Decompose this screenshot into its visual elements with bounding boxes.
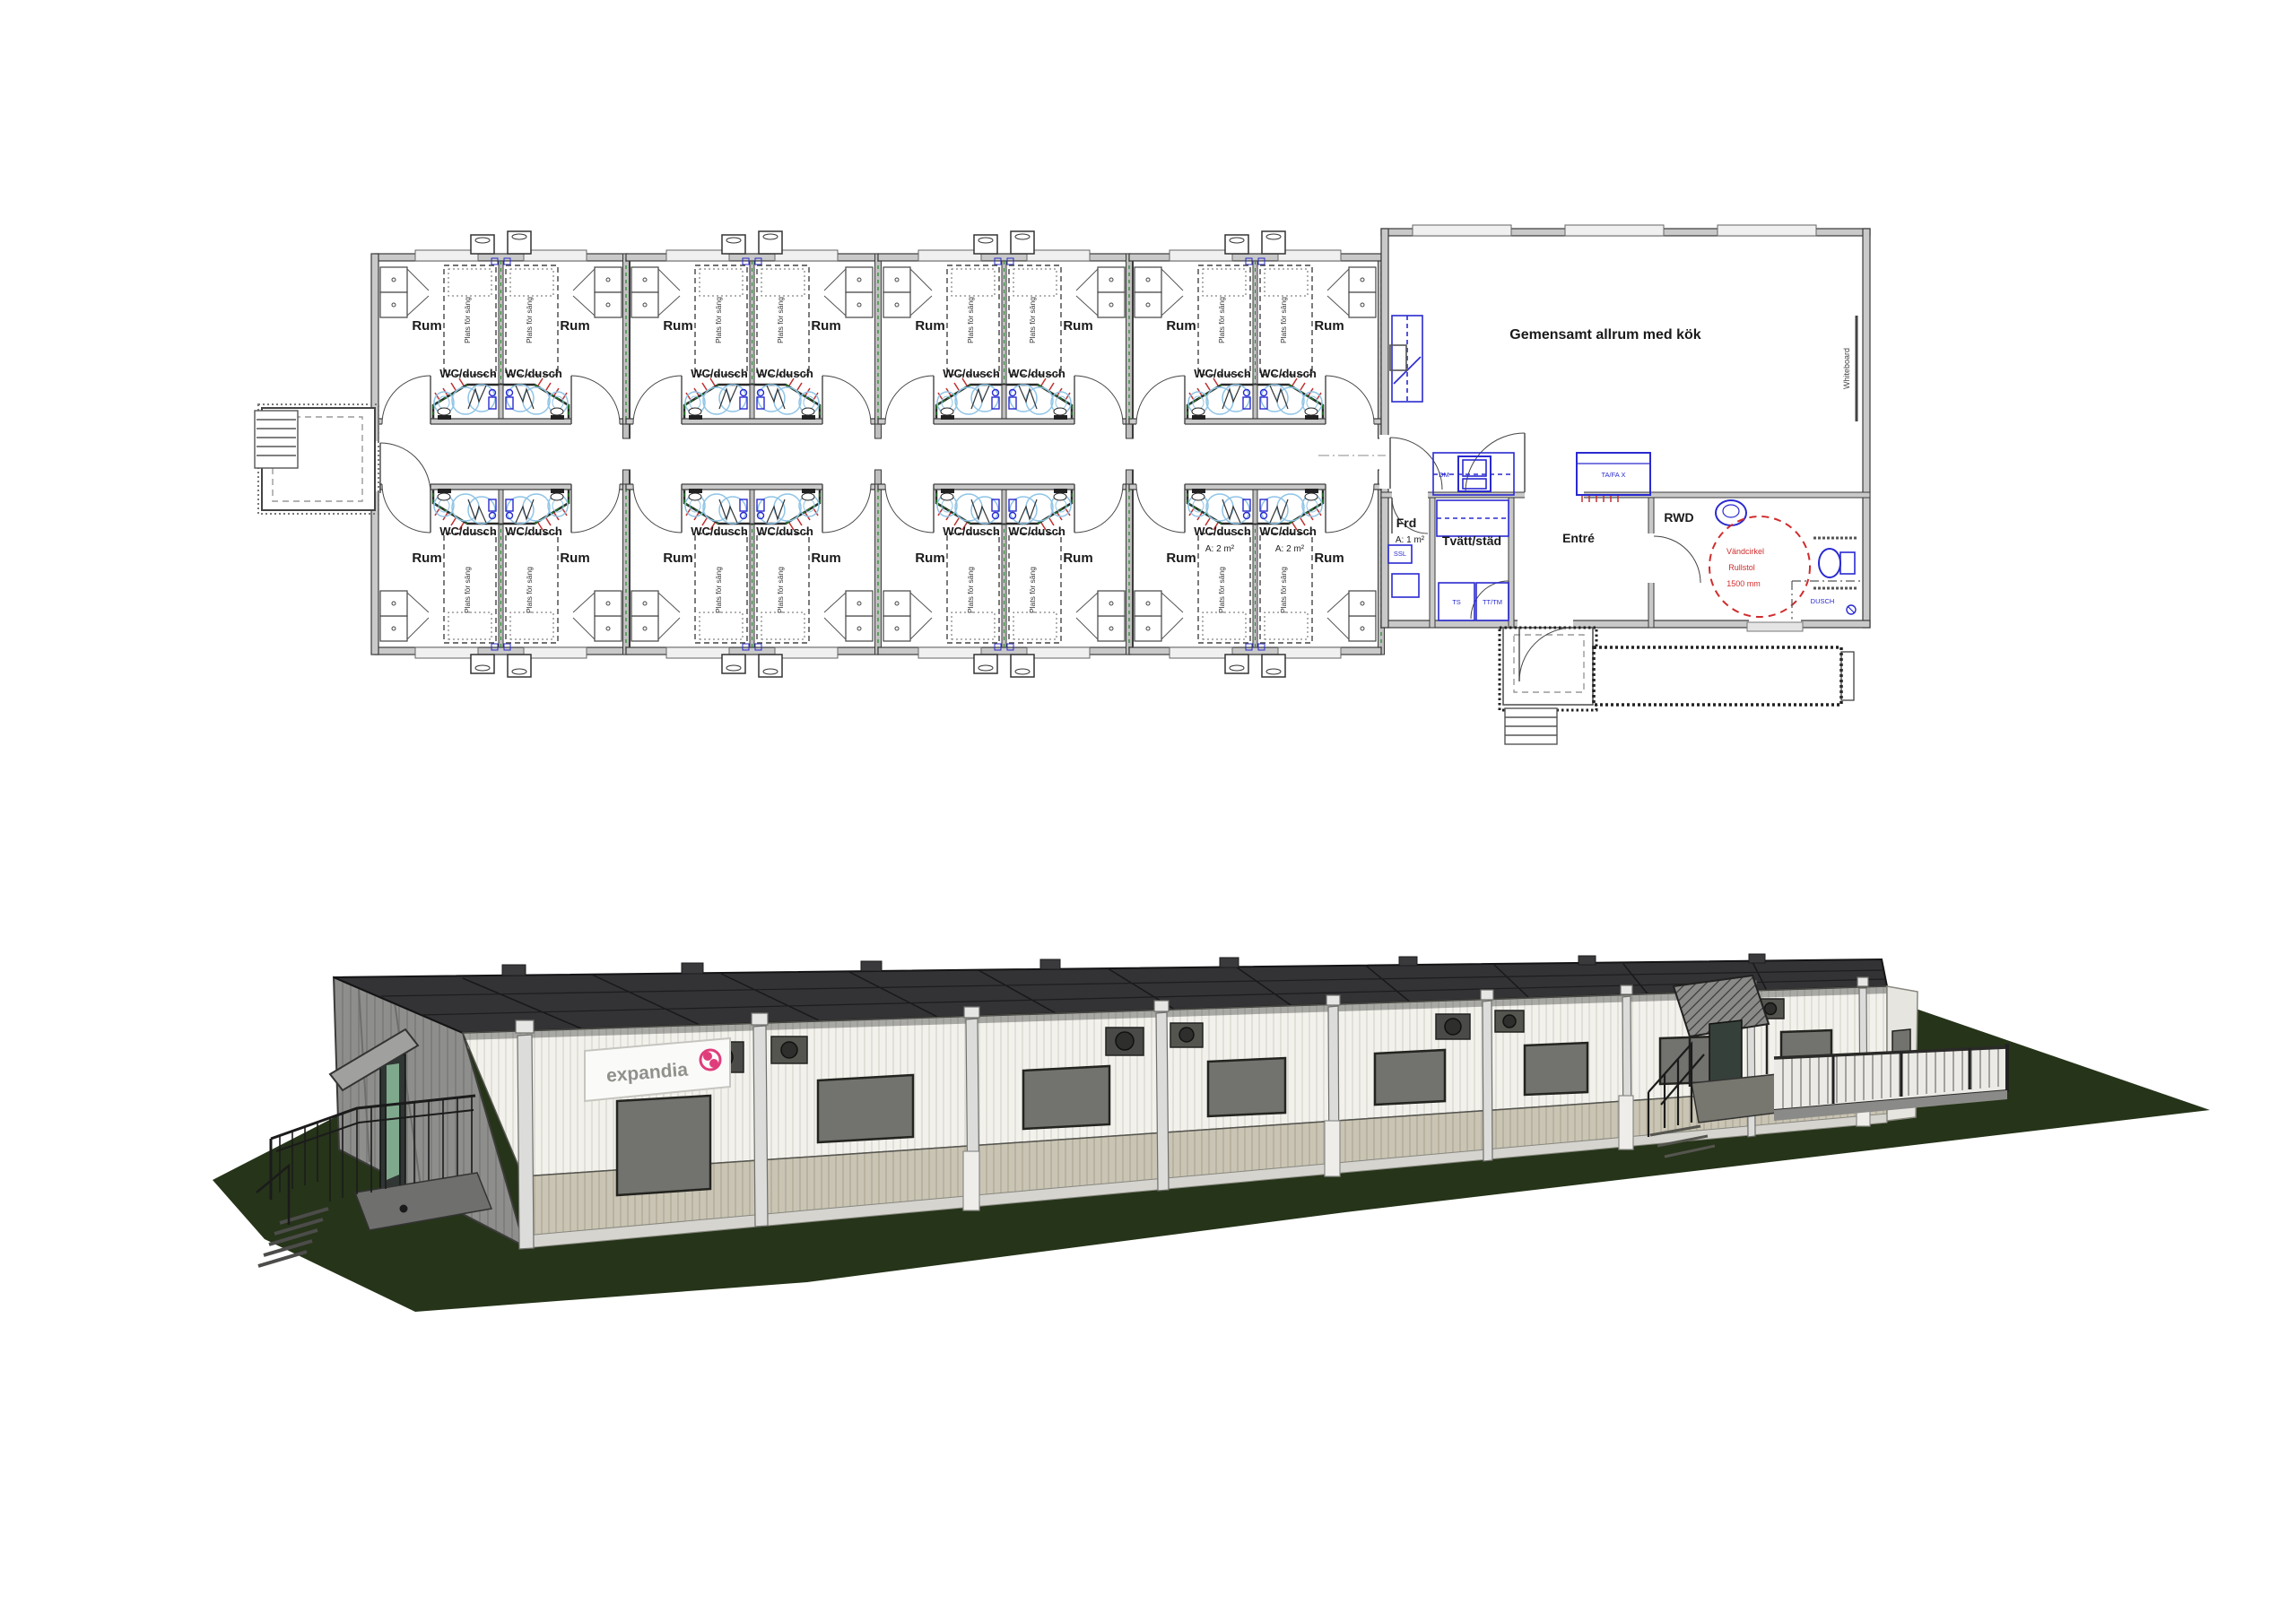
floor-plan: Rum Rum Rum Rum Rum Rum Rum Rum WC/dusch… xyxy=(255,225,1870,744)
bed-space-label: Plats för säng xyxy=(463,297,472,343)
bed-space-label: Plats för säng xyxy=(525,297,534,343)
room-label: Rum xyxy=(811,318,840,334)
bed-space-label: Plats för säng xyxy=(463,567,472,613)
window xyxy=(1660,1037,1716,1084)
shower-area-label: DUSCH xyxy=(1811,597,1835,605)
window xyxy=(818,1075,913,1142)
room-label: Rum xyxy=(1314,551,1344,566)
turning-circle-label: Rullstol xyxy=(1728,563,1755,572)
storage-label: Frd xyxy=(1396,516,1417,530)
room-label: Rum xyxy=(663,551,692,566)
wc-label: WC/dusch xyxy=(756,367,813,380)
entry-stairs xyxy=(255,411,298,468)
ssl-label: SSL xyxy=(1394,550,1406,558)
downspout xyxy=(1325,1121,1340,1176)
room-label: Rum xyxy=(560,318,589,334)
window xyxy=(1208,1058,1285,1116)
room-label: Rum xyxy=(915,551,944,566)
bed-space-label: Plats för säng xyxy=(776,297,785,343)
room-label: Rum xyxy=(1063,551,1092,566)
bed-space-label: Plats för säng xyxy=(966,567,975,613)
room-label: Rum xyxy=(412,551,441,566)
window xyxy=(1525,1043,1587,1095)
bed-space-label: Plats för säng xyxy=(525,567,534,613)
drawing-sheet: Rum Rum Rum Rum Rum Rum Rum Rum WC/dusch… xyxy=(0,0,2296,1622)
wc-label: WC/dusch xyxy=(1194,367,1251,380)
common-room-label: Gemensamt allrum med kök xyxy=(1509,327,1701,343)
room-label: Rum xyxy=(1166,551,1196,566)
wc-label: WC/dusch xyxy=(943,525,1000,538)
room-label: Rum xyxy=(1063,318,1092,334)
wc-label: WC/dusch xyxy=(1008,367,1065,380)
ttm-label: TT/TM xyxy=(1483,598,1502,606)
wc-label: WC/dusch xyxy=(505,525,562,538)
wc-label: WC/dusch xyxy=(1259,525,1317,538)
wc-label: WC/dusch xyxy=(505,367,562,380)
bed-space-label: Plats för säng xyxy=(966,297,975,343)
room-label: Rum xyxy=(663,318,692,334)
module-row-bottom xyxy=(372,470,1385,677)
storage-area-label: A: 1 m² xyxy=(1396,535,1425,545)
entrance-label: Entré xyxy=(1562,531,1595,545)
bed-space-label: Plats för säng xyxy=(776,567,785,613)
room-label: Rum xyxy=(1166,318,1196,334)
whiteboard-label: Whiteboard xyxy=(1842,348,1851,389)
laundry-label: Tvätt/städ xyxy=(1442,533,1501,548)
window xyxy=(1375,1050,1445,1105)
room-label: Rum xyxy=(811,551,840,566)
wc-label: WC/dusch xyxy=(439,525,497,538)
wc-label: WC/dusch xyxy=(943,367,1000,380)
wc-label: WC/dusch xyxy=(1194,525,1251,538)
downspout xyxy=(963,1151,979,1210)
bed-space-label: Plats för säng xyxy=(1279,297,1288,343)
bed-space-label: Plats för säng xyxy=(1279,567,1288,613)
wc-label: WC/dusch xyxy=(691,525,748,538)
bed-space-label: Plats för säng xyxy=(1217,567,1226,613)
bed-space-label: Plats för säng xyxy=(714,297,723,343)
downspout xyxy=(1619,1096,1633,1149)
window xyxy=(1023,1066,1109,1129)
wc-area-label: A: 2 m² xyxy=(1275,544,1305,554)
wc-label: WC/dusch xyxy=(756,525,813,538)
access-ramp-deck xyxy=(1594,647,1854,705)
left-entry-porch xyxy=(255,404,378,514)
bed-space-label: Plats för säng xyxy=(1217,297,1226,343)
render-3d: expandia xyxy=(213,954,2210,1312)
rwd-label: RWD xyxy=(1664,510,1693,525)
tafa-label: TA/FA X xyxy=(1602,471,1626,479)
bed-space-label: Plats för säng xyxy=(714,567,723,613)
sheet-svg: Rum Rum Rum Rum Rum Rum Rum Rum WC/dusch… xyxy=(0,0,2296,1622)
ts-label: TS xyxy=(1452,598,1461,606)
turning-circle-label: 1500 mm xyxy=(1726,579,1761,588)
wc-label: WC/dusch xyxy=(691,367,748,380)
rear-stairs xyxy=(1505,708,1557,744)
bed-space-label: Plats för säng xyxy=(1028,567,1037,613)
wc-label: WC/dusch xyxy=(1259,367,1317,380)
common-block xyxy=(1318,225,1870,631)
window xyxy=(617,1096,710,1195)
wc-label: WC/dusch xyxy=(439,367,497,380)
bed-space-label: Plats för säng xyxy=(1028,297,1037,343)
turning-circle-label: Vändcirkel xyxy=(1726,547,1764,556)
wc-area-label: A: 2 m² xyxy=(1205,544,1235,554)
rear-entry-porch xyxy=(1500,628,1596,744)
room-label: Rum xyxy=(412,318,441,334)
module-row-top xyxy=(372,231,1385,438)
dm-label: DM xyxy=(1439,471,1449,479)
wc-label: WC/dusch xyxy=(1008,525,1065,538)
room-label: Rum xyxy=(560,551,589,566)
room-label: Rum xyxy=(1314,318,1344,334)
room-label: Rum xyxy=(915,318,944,334)
